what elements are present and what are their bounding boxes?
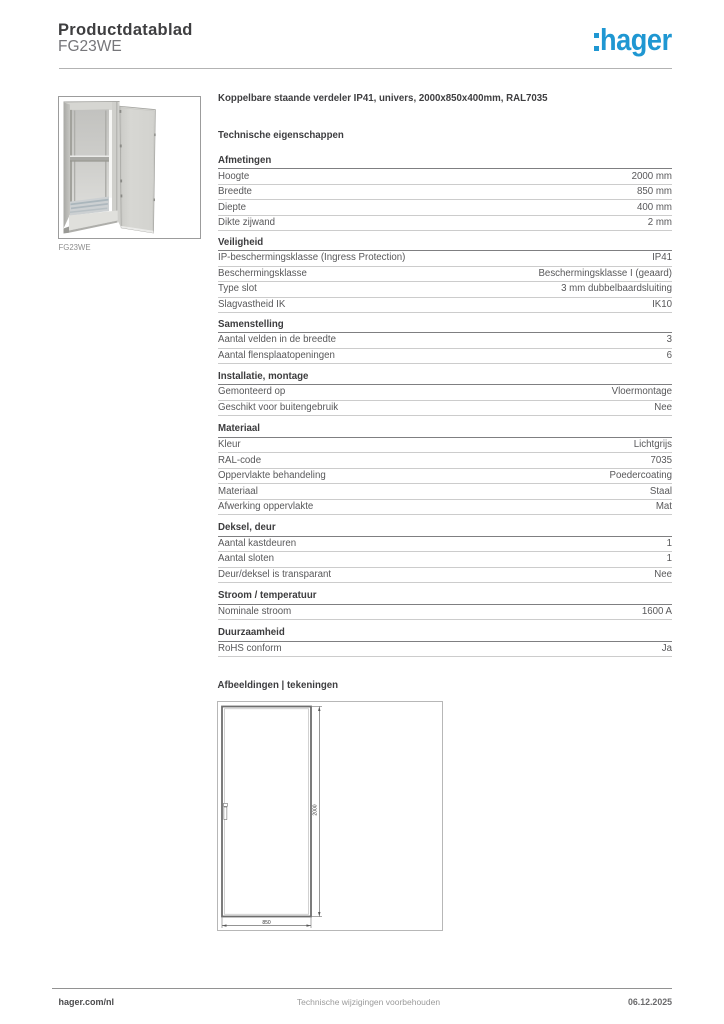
svg-text:2000: 2000 bbox=[313, 804, 319, 815]
svg-text:850: 850 bbox=[262, 919, 271, 925]
